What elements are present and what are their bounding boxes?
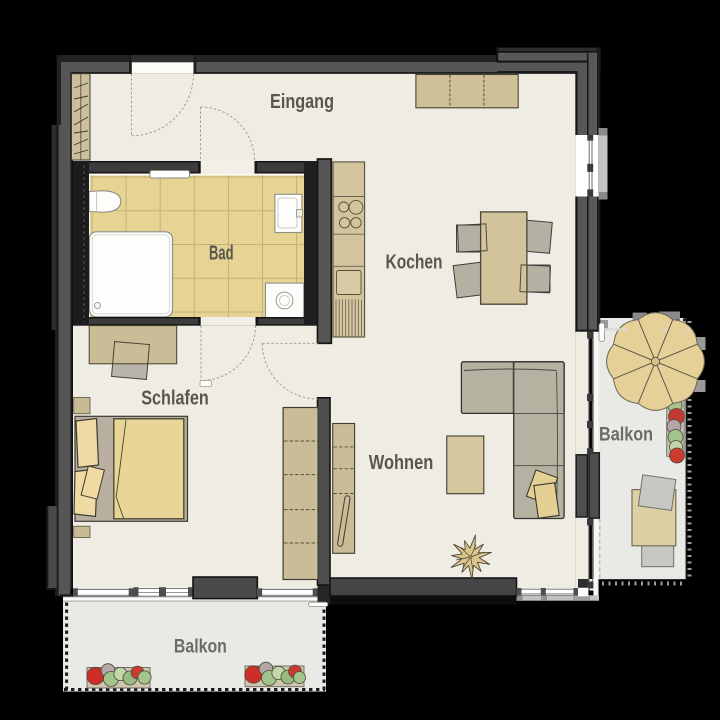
svg-text:Kochen: Kochen [386, 252, 443, 274]
svg-text:Balkon: Balkon [599, 424, 653, 446]
svg-text:Eingang: Eingang [270, 91, 334, 113]
svg-text:Schlafen: Schlafen [141, 388, 209, 410]
svg-text:Bad: Bad [209, 243, 234, 265]
svg-text:Balkon: Balkon [174, 636, 227, 658]
svg-text:Wohnen: Wohnen [369, 452, 434, 474]
